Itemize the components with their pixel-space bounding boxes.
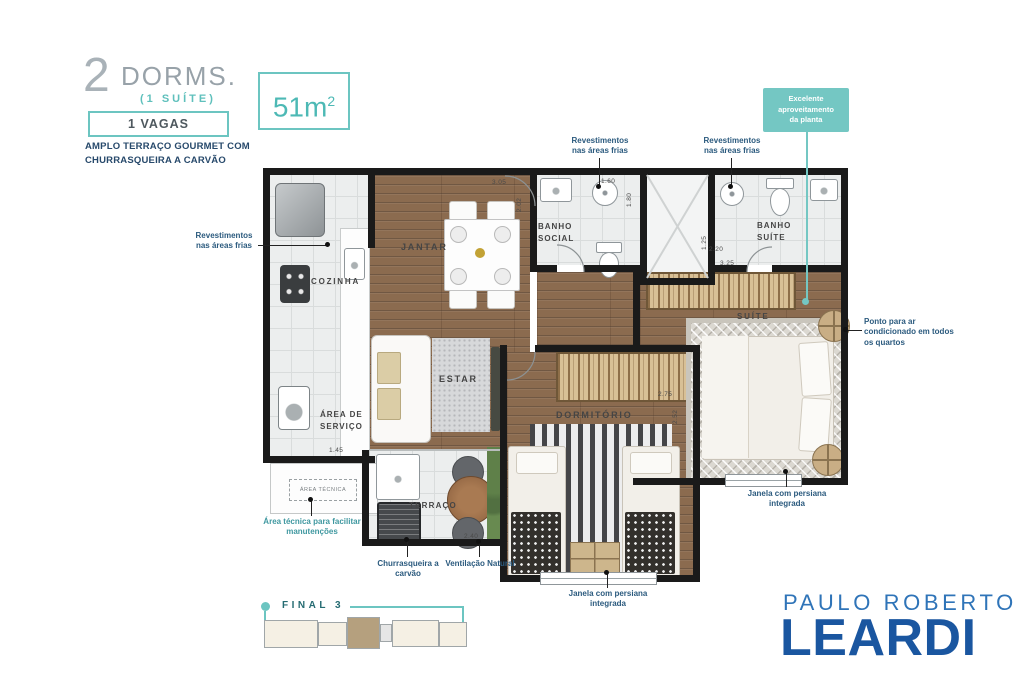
room-label-banho-suite: BANHO SUÍTE [757,220,805,244]
cushion-icon [377,352,401,384]
dimension: 2.02 [516,198,523,212]
annotation-revestimentos-center: Revestimentos nas áreas frias [568,136,632,157]
sideboard-icon [491,347,500,431]
leader-line [311,501,312,516]
wall [507,575,542,582]
plate-icon [450,268,467,285]
wall [263,168,848,175]
sliding-door [369,449,500,451]
tagline-line2: CHURRASQUEIRA A CARVÃO [85,154,250,168]
blanket-icon [511,512,561,574]
leader-dot [728,184,733,189]
area-sup: 2 [327,93,335,109]
leader-dot [404,537,409,542]
room-label-suite: SUÍTE [737,312,770,321]
vagas-badge: 1 VAGAS [88,111,229,137]
room-label-area-servico: ÁREA DE SERVIÇO [320,409,370,433]
dorms-count: 2 [83,52,110,100]
ac-point-icon [812,444,844,476]
annotation-revestimentos-left: Revestimentos nas áreas frias [192,231,256,252]
wall [640,175,647,285]
wall [530,168,537,272]
leader-line [407,541,408,557]
callout-leader-line [806,126,808,301]
wall [362,539,507,546]
wall [368,175,375,248]
terrace-sink-icon [376,454,420,500]
dimension: 3.05 [492,179,506,186]
room-label-dormitorio: DORMITÓRIO [556,410,633,420]
pillow-icon [516,452,558,474]
centerpiece-icon [475,248,485,258]
callout-badge: Excelente aproveitamento da planta [763,88,849,132]
kitchen-sink-icon [344,248,365,280]
final3-dot [261,602,270,611]
area-value: 51m [273,91,327,122]
leader-line [599,158,600,186]
room-label-area-tecnica: ÁREA TÉCNICA [289,479,357,501]
annotation-revestimentos-right: Revestimentos nas áreas frias [700,136,764,157]
chair-icon [487,289,515,309]
keyplan-unit [264,620,318,648]
dimension: 1.45 [329,447,343,454]
wall [530,265,557,272]
bathroom-sink-icon [540,178,572,202]
wall [535,345,700,352]
annotation-janela-suite: Janela com persiana integrada [747,489,827,510]
tagline-line1: AMPLO TERRAÇO GOURMET COM [85,140,250,154]
wall [263,175,270,463]
logo-line2: LEARDI [780,612,977,664]
leader-dot [476,539,481,544]
chair-icon [449,201,477,221]
wall [693,352,700,582]
duvet-icon [702,336,749,458]
wall [500,345,507,582]
floorplan-page: 2 DORMS. (1 SUÍTE) 1 VAGAS AMPLO TERRAÇO… [0,0,1024,686]
washer-icon [278,386,310,430]
leader-line [607,574,608,588]
window [540,572,657,585]
keyplan-unit [318,622,347,646]
wall [653,575,700,582]
dimension: 2.20 [709,246,723,253]
final3-bracket [350,606,464,608]
suite-note: (1 SUÍTE) [140,93,216,105]
leader-dot [783,469,788,474]
area-badge: 51m2 [258,72,350,130]
leader-line [258,245,328,246]
bench-icon [570,542,620,576]
final3-label: FINAL 3 [282,600,344,611]
wall [640,278,715,285]
elevator-shaft [647,175,708,278]
leader-dot [325,242,330,247]
leader-line [479,543,480,557]
leader-line [846,330,862,331]
leader-dot [843,327,848,332]
bathroom-sink-icon [810,179,838,201]
wardrobe-icon [556,352,698,402]
room-label-banho-social: BANHO SOCIAL [538,221,590,245]
pillow-icon [630,452,672,474]
refrigerator-icon [275,183,325,237]
plate-icon [450,226,467,243]
stove-icon [280,265,310,303]
callout-dot [802,298,809,305]
leader-dot [604,570,609,575]
room-label-jantar: JANTAR [401,242,448,252]
keyplan-unit [439,622,467,647]
dimension: 1.60 [601,178,615,185]
dimension: 1.25 [701,236,708,250]
leader-line [786,472,787,487]
living-rug [432,338,490,432]
tagline: AMPLO TERRAÇO GOURMET COM CHURRASQUEIRA … [85,140,250,168]
annotation-ventilacao: Ventilação Natural [442,559,518,569]
annotation-area-tecnica: Área técnica para facilitar manutenções [258,517,366,538]
plate-icon [494,226,511,243]
wall [708,175,715,285]
leader-dot [596,184,601,189]
pillow-icon [798,341,832,397]
dorms-label: DORMS. [121,63,237,89]
room-label-estar: ESTAR [439,374,478,384]
keyplan-stair [380,624,392,642]
chair-icon [487,201,515,221]
keyplan-unit-highlighted [347,617,380,649]
wall [633,265,640,352]
dimension: 2.75 [658,391,672,398]
dimension: 2.52 [672,410,679,424]
keyplan-unit [392,620,439,647]
leader-line [731,158,732,186]
window [725,474,802,487]
room-label-cozinha: COZINHA [311,277,360,286]
wall [633,478,728,485]
blanket-icon [625,512,675,574]
corridor-floor [537,272,633,352]
wall [584,265,647,272]
annotation-churrasqueira: Churrasqueira a carvão [368,559,448,580]
plate-icon [494,268,511,285]
wall [798,478,848,485]
dimension: 3.25 [720,260,734,267]
dimension: 1.80 [626,193,633,207]
cushion-icon [377,388,401,420]
annotation-janela-dormitorio: Janela com persiana integrada [568,589,648,610]
annotation-ponto-ar: Ponto para ar condicionado em todos os q… [864,317,959,348]
room-label-terraco: TERRAÇO [409,501,457,510]
wall [263,456,375,463]
leader-dot [308,497,313,502]
chair-icon [449,289,477,309]
